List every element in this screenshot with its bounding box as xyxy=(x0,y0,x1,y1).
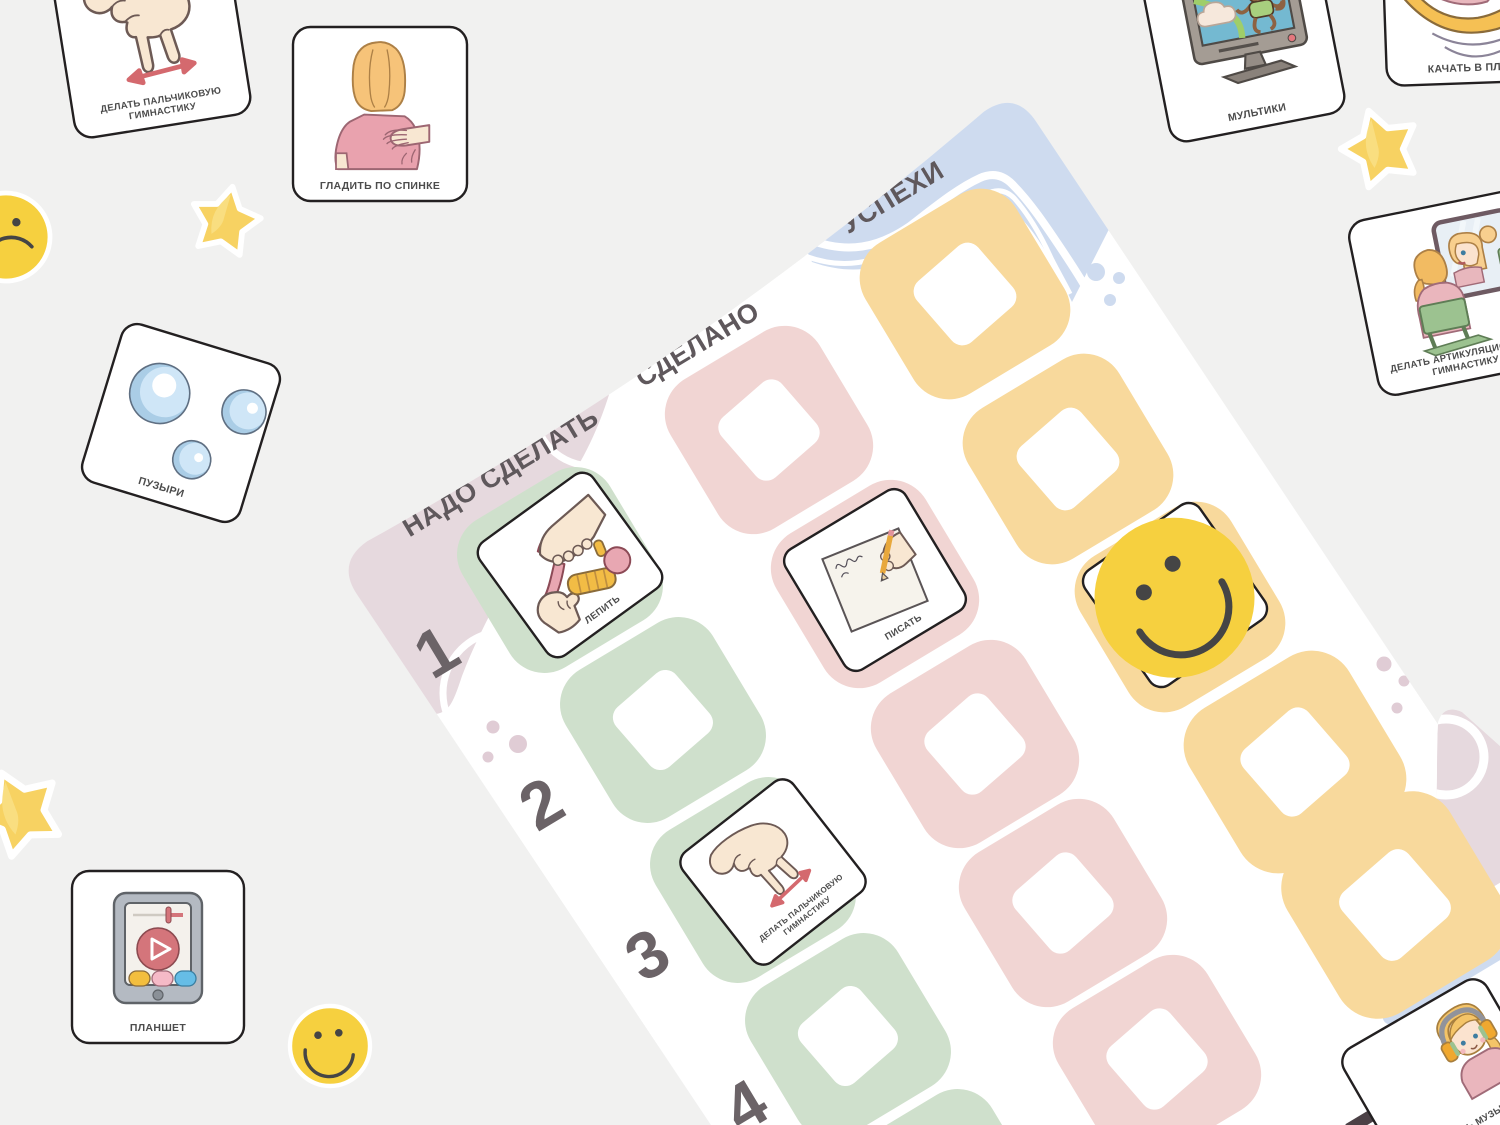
svg-text:КАЧАТЬ В ПЛЕДЕ: КАЧАТЬ В ПЛЕДЕ xyxy=(1428,60,1500,75)
svg-text:ПЛАНШЕТ: ПЛАНШЕТ xyxy=(130,1022,186,1034)
svg-text:ГЛАДИТЬ ПО СПИНКЕ: ГЛАДИТЬ ПО СПИНКЕ xyxy=(320,180,440,192)
